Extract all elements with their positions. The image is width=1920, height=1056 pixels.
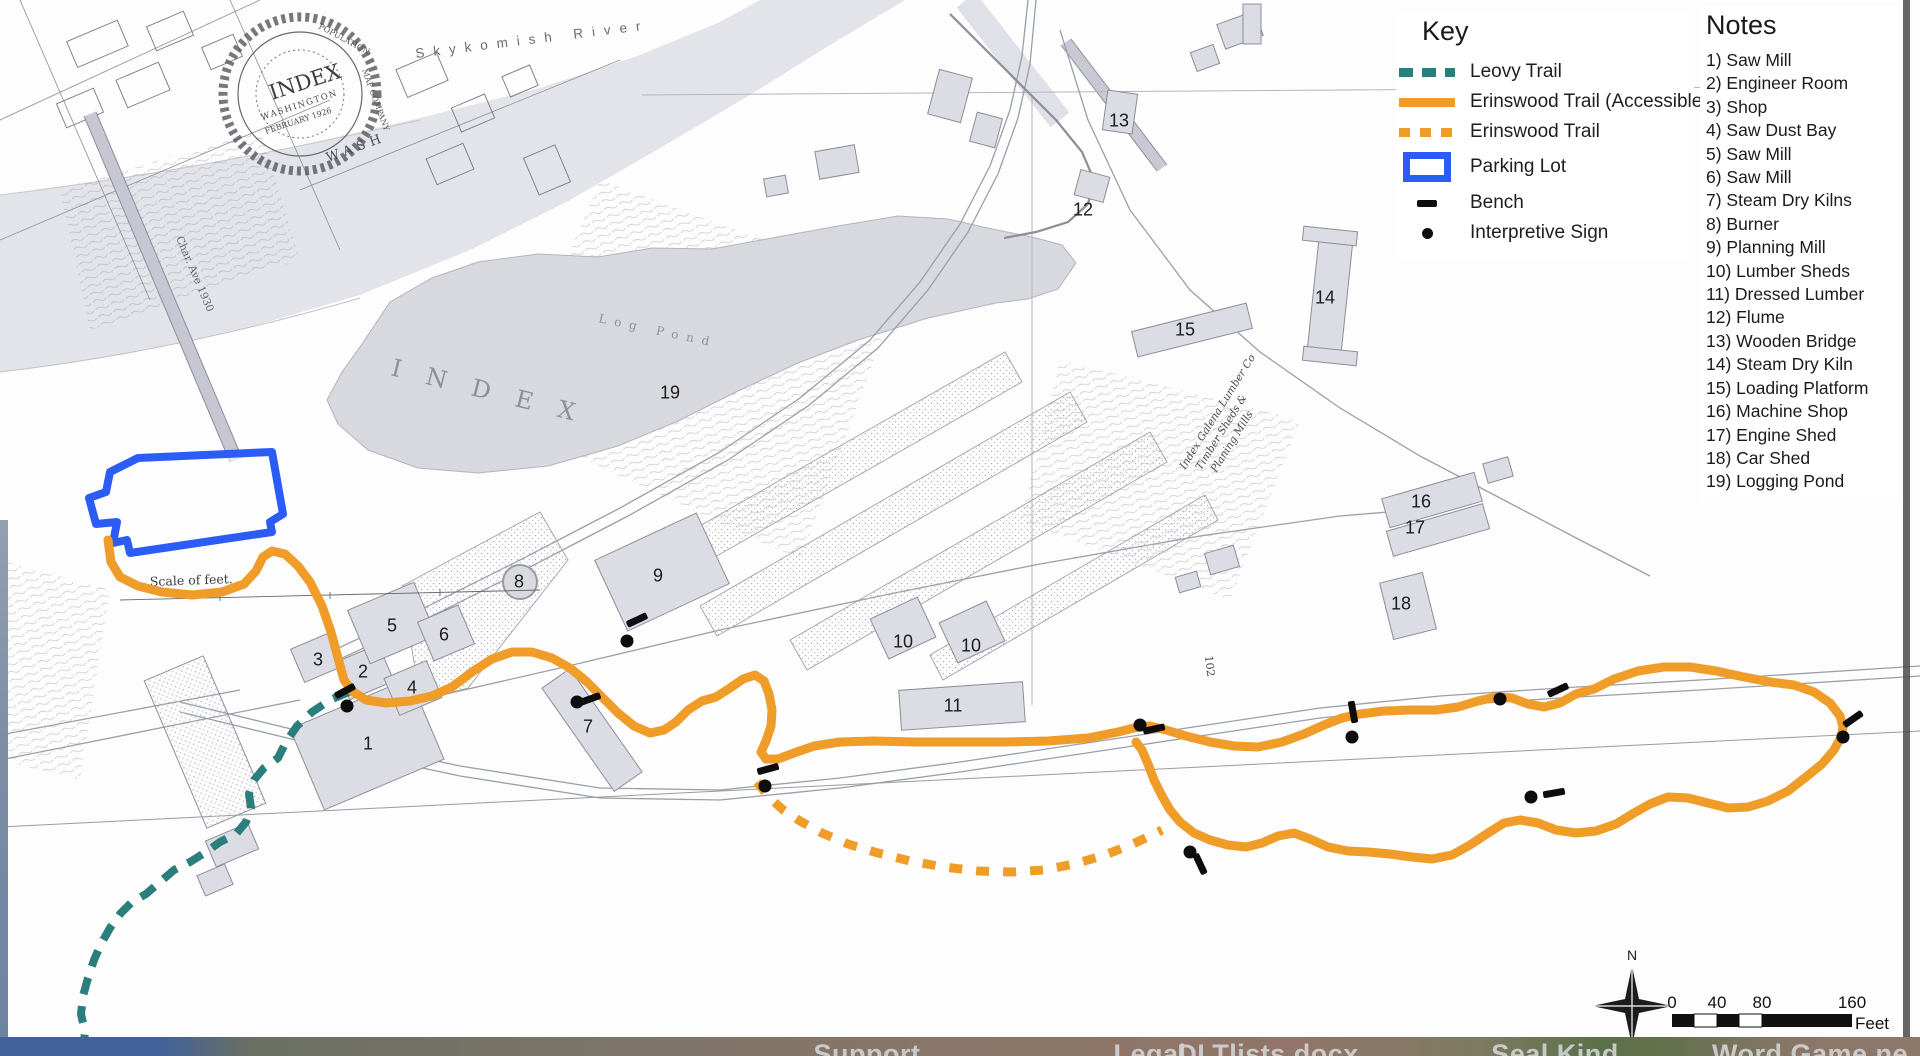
key-item-label: Parking Lot <box>1470 156 1566 178</box>
taskbar-cutoff-label: Seal Kind <box>1491 1039 1619 1056</box>
note-item: 9) Planning Mill <box>1706 236 1910 259</box>
background-taskbar-strip: SupportLegalDLTlists.docxSeal KindWord G… <box>0 1037 1920 1056</box>
note-item: 4) Saw Dust Bay <box>1706 119 1910 142</box>
scale-tick-160: 160 <box>1838 993 1866 1012</box>
note-item: 5) Saw Mill <box>1706 143 1910 166</box>
note-item: 13) Wooden Bridge <box>1706 330 1910 353</box>
note-item: 1) Saw Mill <box>1706 49 1910 72</box>
scale-tick-0: 0 <box>1667 993 1676 1012</box>
note-item: 11) Dressed Lumber <box>1706 283 1910 306</box>
key-symbol-swatch <box>1396 220 1458 246</box>
key-title: Key <box>1422 16 1694 47</box>
key-symbol-swatch <box>1396 119 1458 145</box>
key-item-label: Interpretive Sign <box>1470 222 1608 244</box>
key-item-label: Leovy Trail <box>1470 61 1562 83</box>
key-row: Interpretive Sign <box>1396 220 1694 246</box>
taskbar-cutoff-label: Support <box>814 1039 921 1056</box>
scale-tick-80: 80 <box>1753 993 1772 1012</box>
key-symbol-swatch <box>1396 89 1458 115</box>
taskbar-cutoff-label: Legal <box>1113 1039 1186 1056</box>
key-row: Erinswood Trail (Accessible) <box>1396 89 1694 115</box>
key-item-label: Erinswood Trail <box>1470 121 1600 143</box>
note-item: 17) Engine Shed <box>1706 424 1910 447</box>
note-item: 15) Loading Platform <box>1706 377 1910 400</box>
key-panel: Key Leovy Trail Erinswood Trail (Accessi… <box>1396 12 1694 260</box>
key-row: Parking Lot <box>1396 149 1694 185</box>
key-row: Bench <box>1396 190 1694 216</box>
key-symbol-swatch <box>1396 59 1458 85</box>
taskbar-cutoff-label: Word Game ne <box>1712 1039 1908 1056</box>
lot-102-label: 102 <box>1202 655 1217 677</box>
notes-panel: Notes 1) Saw Mill2) Engineer Room3) Shop… <box>1700 6 1910 502</box>
compass-n-label: N <box>1627 947 1637 963</box>
scale-unit-label: Feet <box>1855 1014 1889 1033</box>
note-item: 19) Logging Pond <box>1706 470 1910 493</box>
note-item: 16) Machine Shop <box>1706 400 1910 423</box>
note-item: 8) Burner <box>1706 213 1910 236</box>
key-symbol-swatch <box>1396 149 1458 185</box>
note-item: 7) Steam Dry Kilns <box>1706 189 1910 212</box>
note-item: 18) Car Shed <box>1706 447 1910 470</box>
notes-title: Notes <box>1706 10 1910 41</box>
key-symbol-swatch <box>1396 190 1458 216</box>
key-row: Leovy Trail <box>1396 59 1694 85</box>
key-row: Erinswood Trail <box>1396 119 1694 145</box>
key-item-label: Bench <box>1470 192 1524 214</box>
note-item: 3) Shop <box>1706 96 1910 119</box>
note-item: 6) Saw Mill <box>1706 166 1910 189</box>
note-item: 14) Steam Dry Kiln <box>1706 353 1910 376</box>
page-right-edge-shadow <box>1903 0 1910 1040</box>
parking-lot-outline <box>89 452 283 553</box>
desktop-left-sliver <box>0 520 8 1056</box>
key-item-label: Erinswood Trail (Accessible) <box>1470 91 1709 113</box>
note-item: 12) Flume <box>1706 306 1910 329</box>
burner-circle <box>503 565 537 599</box>
svg-text:Scale of feet.: Scale of feet. <box>150 571 233 589</box>
scale-tick-40: 40 <box>1708 993 1727 1012</box>
taskbar-cutoff-label: DLTlists.docx <box>1177 1039 1359 1056</box>
note-item: 2) Engineer Room <box>1706 72 1910 95</box>
note-item: 10) Lumber Sheds <box>1706 260 1910 283</box>
trail-map-page: POPULATION, MAP COMPANY INDEX WASHINGTON… <box>0 0 1920 1056</box>
